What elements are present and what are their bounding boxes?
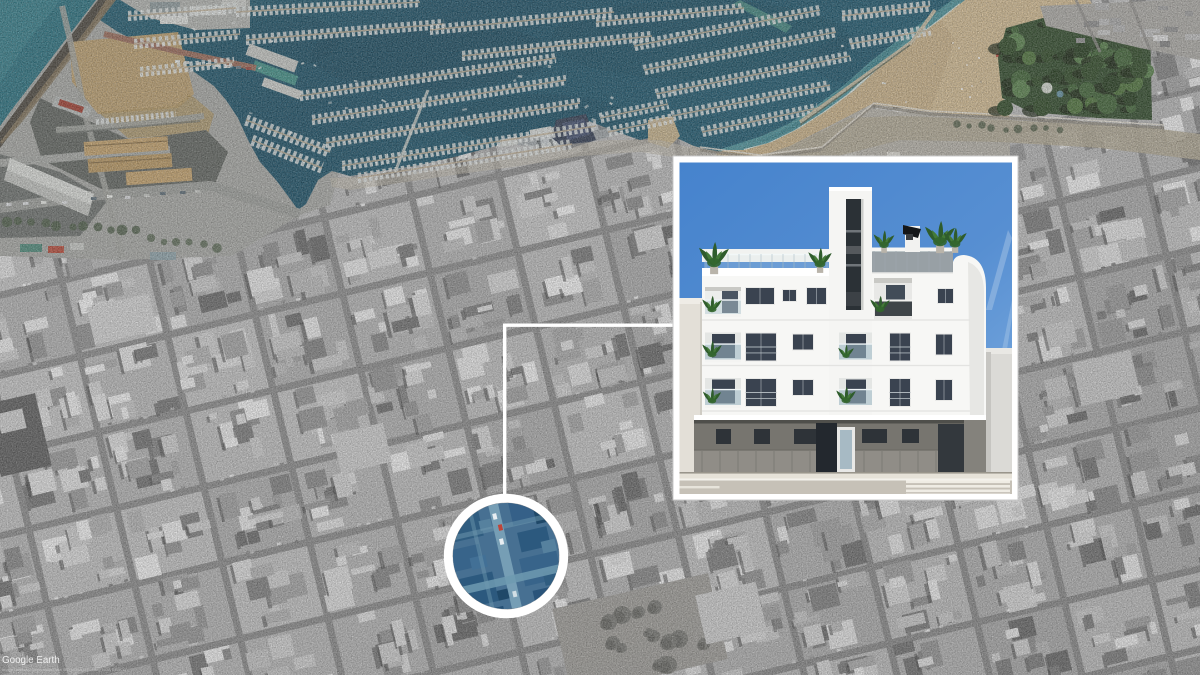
svg-text:Image Landsat / Copernicus Da: Image Landsat / Copernicus Data SIO NOAA… bbox=[2, 667, 126, 672]
svg-text:Google Earth: Google Earth bbox=[2, 655, 60, 666]
